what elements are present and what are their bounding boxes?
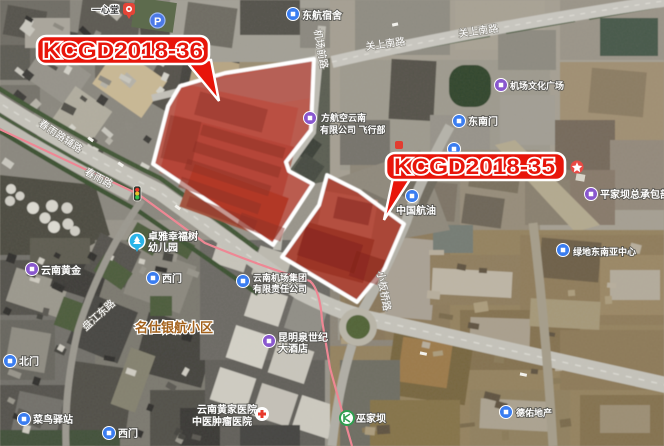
svg-text:云南黄家医院: 云南黄家医院: [197, 403, 257, 416]
svg-text:有限公司 飞行部: 有限公司 飞行部: [320, 124, 386, 135]
svg-text:KCGD2018-35: KCGD2018-35: [394, 154, 555, 179]
svg-text:西门: 西门: [118, 427, 138, 440]
svg-text:一心堂: 一心堂: [92, 4, 119, 15]
svg-text:东南门: 东南门: [468, 115, 498, 128]
svg-text:名仕银航小区: 名仕银航小区: [135, 320, 213, 335]
svg-text:大酒店: 大酒店: [278, 342, 308, 355]
svg-text:西门: 西门: [162, 272, 182, 285]
svg-text:KCGD2018-36: KCGD2018-36: [43, 38, 203, 63]
svg-text:昆明泉世纪: 昆明泉世纪: [278, 331, 328, 344]
svg-text:方航空云南: 方航空云南: [321, 112, 366, 123]
svg-text:德佑地产: 德佑地产: [516, 407, 552, 418]
svg-text:北门: 北门: [19, 355, 39, 368]
svg-text:平家坝总承包部: 平家坝总承包部: [600, 188, 664, 201]
svg-text:云南黄金: 云南黄金: [41, 264, 82, 277]
svg-text:巫家坝: 巫家坝: [356, 412, 386, 425]
svg-text:绿地东南亚中心: 绿地东南亚中心: [573, 246, 636, 257]
svg-text:P: P: [154, 16, 161, 28]
svg-text:东航宿舍: 东航宿舍: [302, 9, 343, 22]
svg-text:幼儿园: 幼儿园: [148, 241, 178, 254]
svg-text:机场文化广场: 机场文化广场: [510, 80, 564, 91]
svg-text:有限责任公司: 有限责任公司: [253, 283, 307, 294]
svg-text:中国航油: 中国航油: [396, 204, 436, 217]
svg-text:云南机场集团: 云南机场集团: [253, 272, 307, 283]
svg-text:卓雅幸福树: 卓雅幸福树: [148, 230, 198, 243]
svg-text:菜鸟驿站: 菜鸟驿站: [32, 413, 73, 426]
svg-text:中医肿瘤医院: 中医肿瘤医院: [192, 415, 252, 428]
